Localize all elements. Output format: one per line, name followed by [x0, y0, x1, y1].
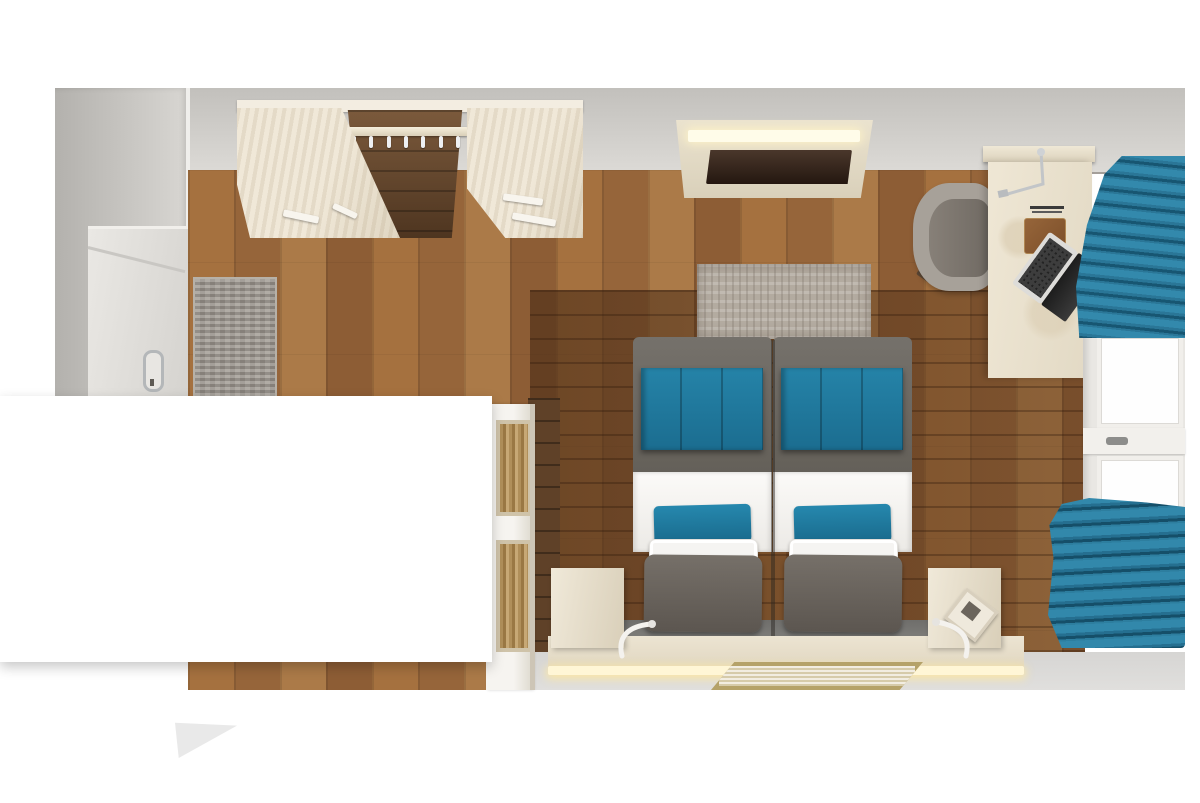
rug-stripes — [719, 666, 915, 686]
wardrobe-hangers — [352, 136, 460, 148]
bed-left — [633, 337, 772, 640]
teal-bed-runner — [641, 368, 763, 450]
desk-chair-seat — [929, 199, 991, 277]
decor-panel — [496, 540, 532, 652]
pen — [1032, 211, 1062, 213]
wardrobe-hanging-rail — [344, 127, 468, 136]
desk-shelf — [983, 146, 1095, 162]
window-pane-upper — [1097, 334, 1183, 428]
page-corner-wedge — [175, 722, 237, 758]
bathroom-inset-card — [0, 396, 492, 662]
area-rug — [697, 264, 871, 339]
bedside-runner-rug — [711, 662, 923, 690]
window-divider — [1083, 428, 1185, 454]
bed-gap-shadow — [771, 340, 775, 638]
floorplan-render — [0, 0, 1200, 803]
door-handle — [143, 350, 164, 392]
bed-right — [773, 337, 912, 640]
shelf-column-edge — [530, 404, 535, 690]
curtain-lower — [1048, 498, 1185, 648]
ac-light-strip — [688, 130, 860, 142]
curtain-upper — [1076, 156, 1185, 338]
teal-bed-runner — [781, 368, 903, 450]
nightstand-left — [551, 568, 624, 648]
decor-panel — [496, 420, 532, 516]
doormat — [193, 277, 277, 400]
gray-pillow — [784, 554, 903, 632]
gray-pillow — [644, 554, 763, 632]
pen — [1030, 206, 1064, 209]
window-handle — [1106, 437, 1128, 445]
ac-vent — [706, 150, 852, 184]
photo — [961, 601, 981, 621]
